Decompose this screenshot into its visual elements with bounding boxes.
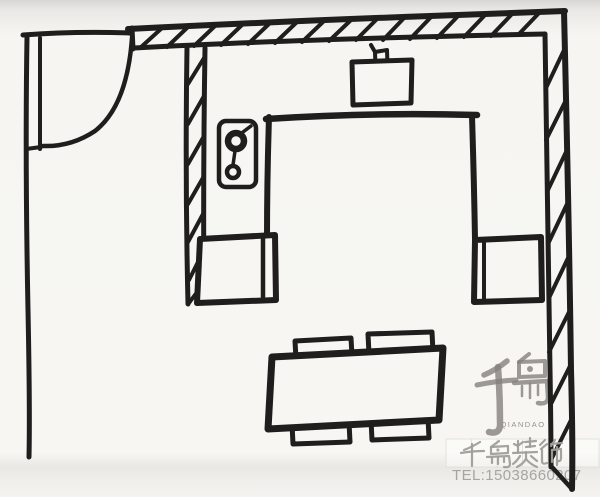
right-wall — [545, 11, 572, 489]
floor-plan-page: QIANDAO TEL:15038660207 — [0, 0, 600, 497]
top-wall — [23, 11, 565, 48]
left-cabinet — [197, 235, 276, 303]
floor-plan-sketch — [23, 11, 572, 489]
floor-plan-canvas: QIANDAO TEL:15038660207 — [0, 0, 600, 497]
brand-logo-subtext: QIANDAO — [500, 420, 545, 429]
left-wall — [26, 37, 41, 457]
inner-room-outline — [266, 114, 477, 239]
stove-symbol — [219, 121, 256, 187]
door-arc — [43, 38, 132, 146]
dining-table-set — [268, 332, 443, 444]
door-swing — [43, 28, 133, 146]
dining-table — [268, 348, 443, 429]
sink-symbol — [352, 45, 412, 105]
right-cabinet — [474, 237, 542, 302]
